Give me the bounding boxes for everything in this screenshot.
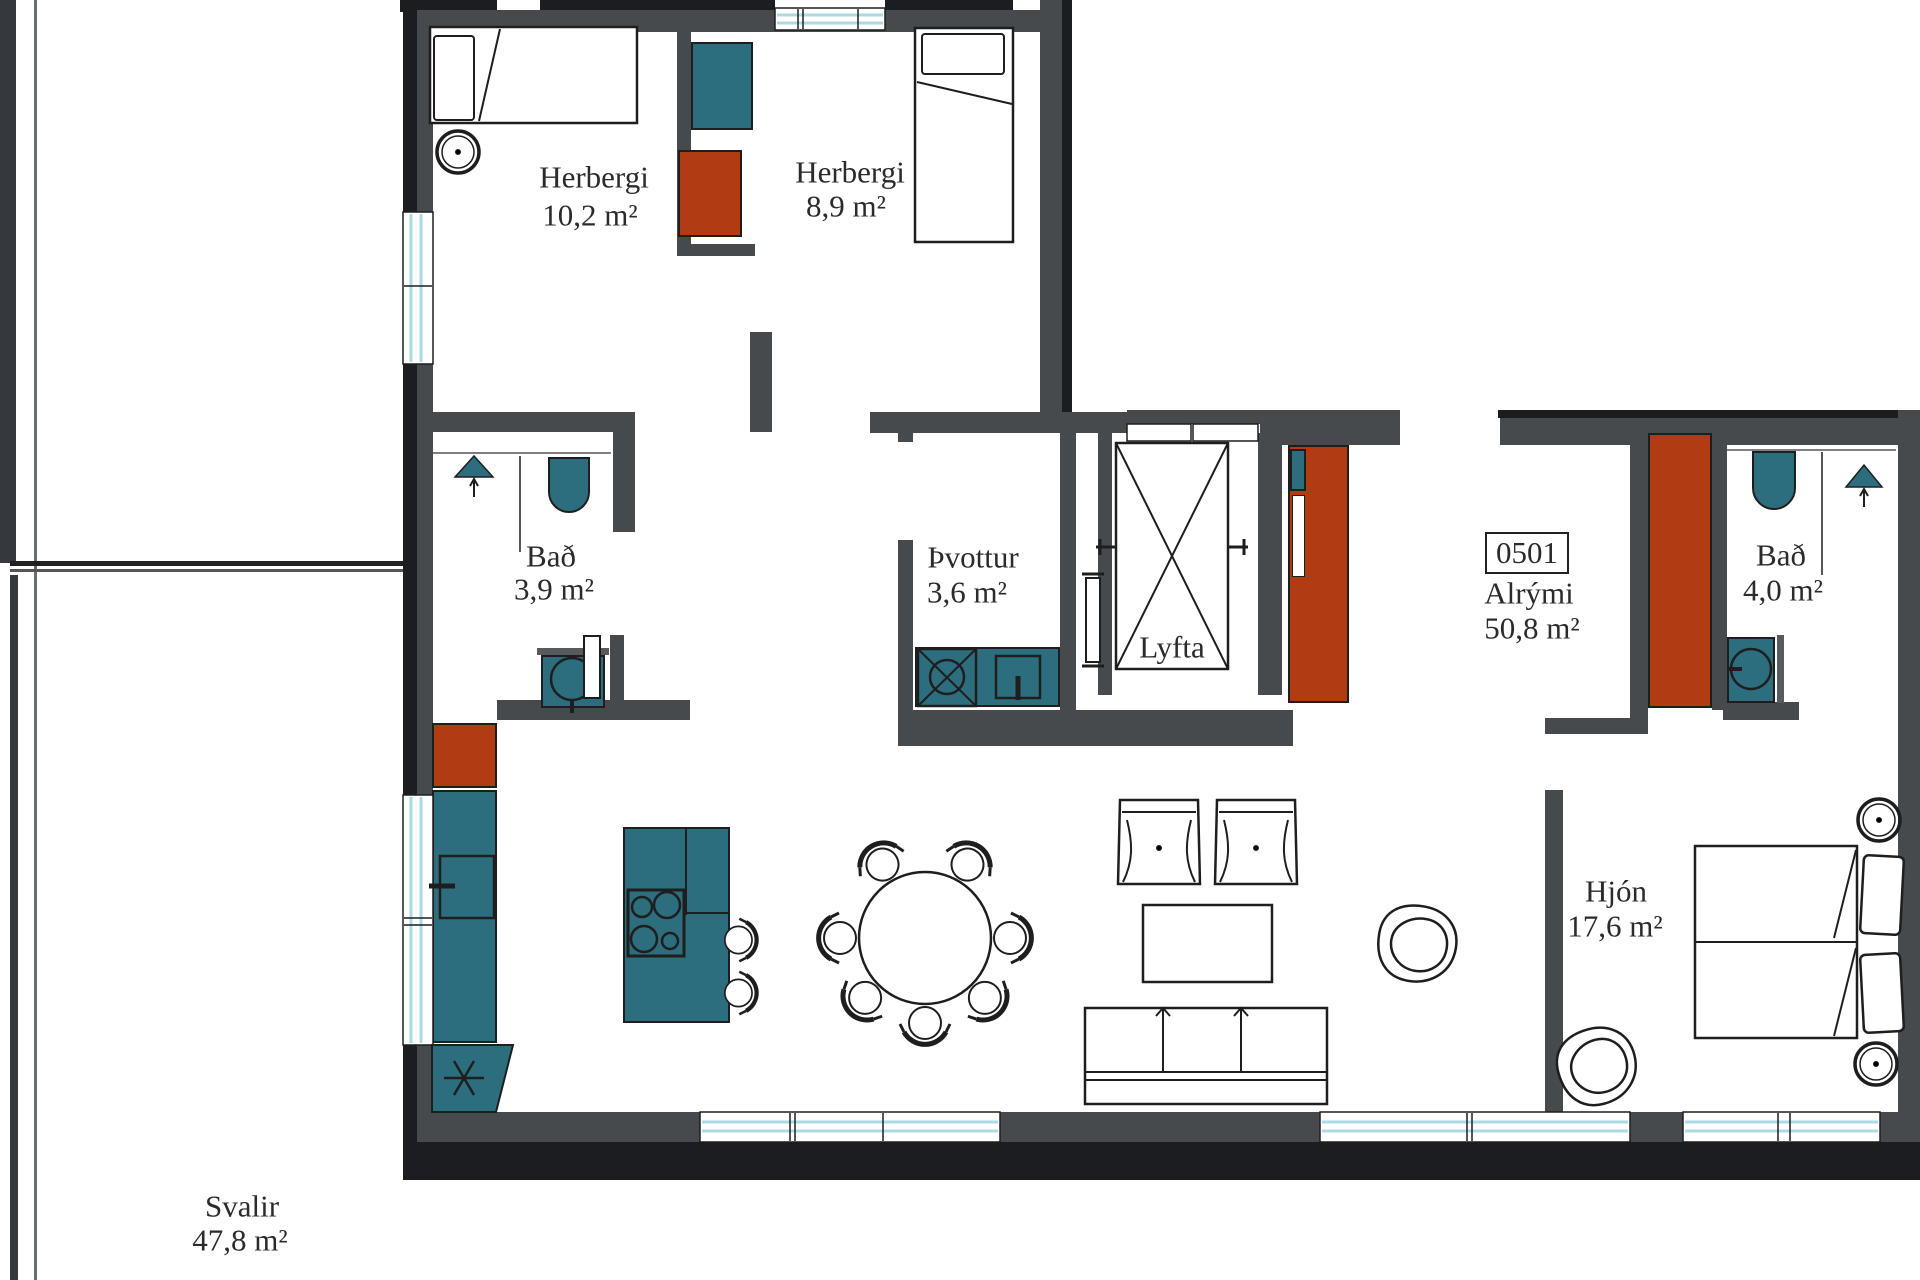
room-label-lyfta: Lyfta — [1139, 632, 1204, 665]
room-label-thvottur-area: 3,6 m² — [927, 577, 1007, 610]
room-label-herbergi1-area: 10,2 m² — [542, 200, 637, 233]
dining-chair — [900, 1007, 950, 1044]
radiator — [1082, 574, 1104, 666]
room-label-bad2-area: 4,0 m² — [1743, 575, 1823, 608]
furniture-linework — [0, 0, 1920, 1280]
bedside-table — [1855, 1043, 1897, 1085]
armchair — [1118, 800, 1200, 884]
room-label-svalir-name: Svalir — [205, 1191, 279, 1224]
room-label-svalir-area: 47,8 m² — [192, 1225, 287, 1258]
unit-number-badge: 0501 — [1485, 532, 1569, 574]
room-label-hjon-name: Hjón — [1585, 876, 1647, 909]
bedside-table — [437, 131, 479, 173]
armchair — [1215, 800, 1297, 884]
shower-icon — [1846, 465, 1882, 487]
room-label-bad1-area: 3,9 m² — [514, 574, 594, 607]
shower-icon — [455, 456, 493, 477]
room-label-alrymi-area: 50,8 m² — [1484, 613, 1579, 646]
bar-stool — [725, 919, 757, 962]
bar-stool — [725, 972, 757, 1015]
dining-table — [859, 872, 991, 1004]
coffee-table — [1143, 905, 1272, 982]
room-label-hjon-area: 17,6 m² — [1567, 911, 1662, 944]
lounge-chair — [1372, 900, 1462, 988]
toilet-icon — [549, 458, 589, 512]
bedside-table — [1858, 799, 1900, 841]
dining-chair — [819, 913, 856, 963]
room-label-bad1-name: Bað — [526, 541, 576, 574]
elevator-doors — [1127, 424, 1258, 441]
sofa — [1085, 1008, 1327, 1104]
bath2-fixtures — [1727, 450, 1896, 689]
kitchen-fixtures — [429, 827, 730, 1112]
door-leaf — [584, 636, 600, 698]
room-label-herbergi1-name: Herbergi — [539, 162, 649, 195]
lounge-chair — [1550, 1019, 1645, 1113]
laundry-fixtures — [918, 649, 1040, 706]
room-label-alrymi-name: Alrými — [1484, 578, 1574, 611]
room-label-herbergi2-name: Herbergi — [795, 157, 905, 190]
floor-plan: Herbergi 10,2 m² Herbergi 8,9 m² Bað 3,9… — [0, 0, 1920, 1280]
bed-single — [915, 28, 1013, 242]
toilet-icon — [1753, 452, 1795, 509]
dining-chair — [994, 913, 1031, 963]
room-label-thvottur-name: Þvottur — [927, 542, 1018, 575]
room-label-bad2-name: Bað — [1756, 540, 1806, 573]
room-label-herbergi2-area: 8,9 m² — [806, 191, 886, 224]
bed-single — [430, 27, 637, 123]
bed-double — [1695, 846, 1904, 1038]
